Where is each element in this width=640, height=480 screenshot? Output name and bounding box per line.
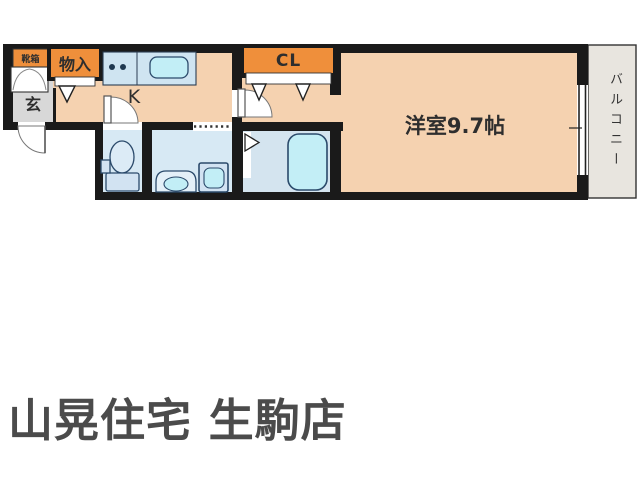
kitchen-label: K (120, 86, 148, 108)
kitchen-counter (103, 52, 196, 85)
bathtub (288, 134, 327, 190)
store-name-title: 山晃住宅 生駒店 (8, 384, 628, 440)
kitchen-sink-icon (150, 57, 188, 78)
stove-burner-icon (109, 64, 115, 70)
western-room-label: 洋室9.7帖 (380, 112, 530, 138)
storage-label: 物入 (51, 49, 99, 77)
stove-burner-icon (120, 64, 126, 70)
balcony-label: バルコニー (598, 72, 624, 192)
washing-machine (199, 163, 228, 192)
shoe-box-label: 靴箱 (13, 50, 48, 66)
closet-label: CL (244, 48, 333, 73)
floor-plan-page: 靴箱 物入 玄 K CL 洋室9.7帖 バルコニー 山晃住宅 生駒店 (0, 0, 640, 480)
genkan-label: 玄 (13, 90, 53, 116)
vanity-sink (156, 171, 196, 192)
